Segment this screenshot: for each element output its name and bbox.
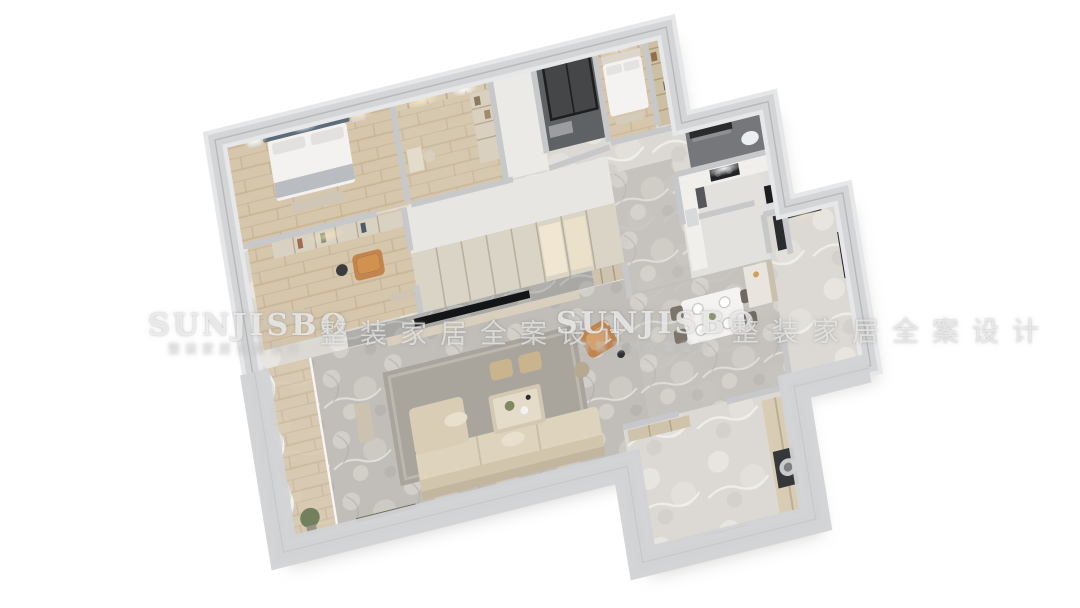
floor-plan-stage: SUNJISBO 整装家居全案设计 整装家居全案设计 SUNJISBO 整装家居…: [0, 0, 1080, 608]
apartment: [215, 0, 892, 608]
floor-plan-svg: [0, 0, 1080, 608]
